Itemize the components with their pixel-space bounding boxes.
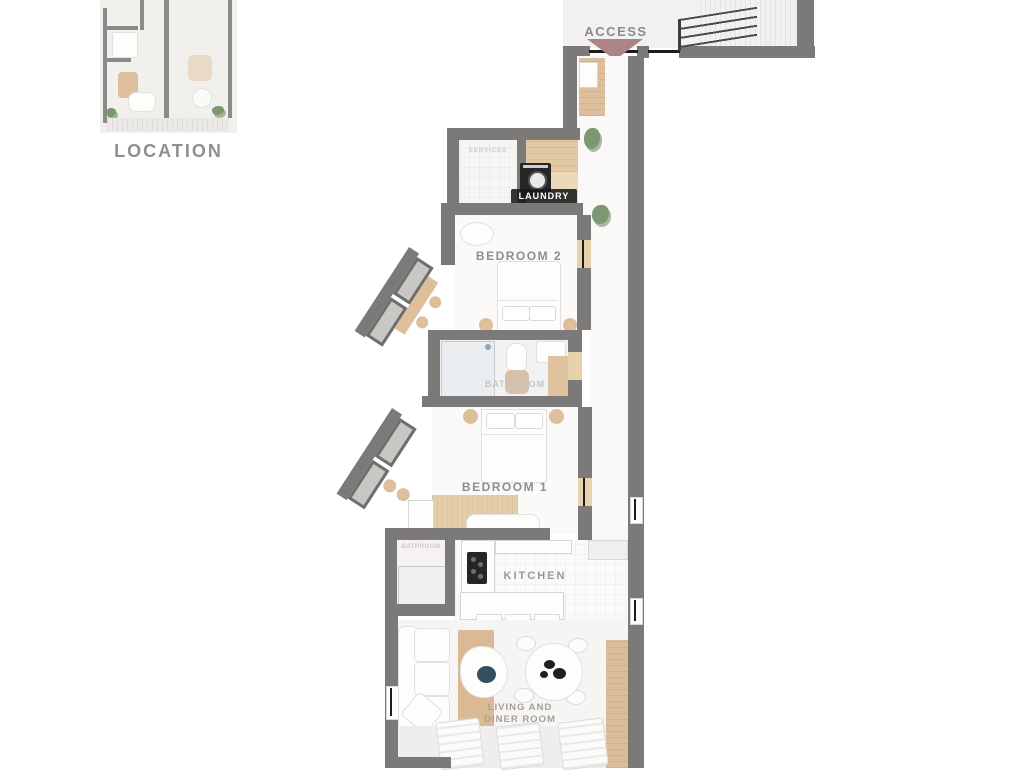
bathroom-door-threshold [568,352,582,380]
stair-opening-line [648,50,680,53]
small-shower [398,566,446,607]
bedroom1-right-wall [578,407,592,534]
bedroom1-door-threshold [578,478,592,506]
kitchen-label: KITCHEN [480,570,590,582]
small-bathroom-right-wall [445,540,455,612]
entry-cabinet [579,62,598,88]
bedroom2-bed [497,261,561,333]
right-wall-door-line [634,499,636,520]
access-label: ACCESS [578,24,654,39]
bedroom2-left-wall [441,203,455,265]
nightstand [549,409,564,424]
nightstand [463,409,478,424]
services-label: SERVICES [461,148,515,154]
bedroom1-door-line [583,478,585,506]
services-top-wall [447,128,580,140]
bedroom2-rug [460,222,494,246]
deck-wood [606,640,628,768]
living-window-line [390,688,392,716]
toilet [506,343,527,373]
bathroom-left-wall [428,330,440,400]
living-label-line1: LIVING AND [460,702,580,713]
bathroom-top-wall [428,330,578,340]
bedroom1-label: BEDROOM 1 [440,480,570,494]
bedroom2-right-wall [577,215,591,330]
sun-lounger [557,717,609,770]
bedroom1-bed [481,409,547,483]
small-bathroom-label: BATHROOM [397,544,445,550]
sofa [398,626,460,734]
bathroom-label: BATHROOM [470,379,560,389]
laundry-banner: LAUNDRY [511,189,577,204]
floor-plan: ACCESS SERVICES LAUNDRY BEDROOM [0,0,1024,768]
right-wall-door-line [634,600,636,621]
laundry-label: LAUNDRY [511,189,577,204]
lower-top-wall [385,528,550,540]
lower-top-wall [578,528,592,540]
right-wall-door-frame [630,598,643,625]
kitchen-upper-counter [495,540,572,554]
terrace-bottom-wall [385,757,451,768]
bedroom2-top-wall [443,203,583,215]
right-wall-door-frame [630,497,643,524]
right-outer-wall [628,56,644,768]
bathroom-cabinet [548,356,568,396]
dining-table [525,643,583,701]
sun-lounger [495,721,544,770]
fridge [588,540,628,560]
coffee-table [460,646,508,698]
dining-chair [516,636,536,651]
shower-head-icon [485,344,491,350]
small-bathroom-left-wall [385,528,397,612]
bathroom-bottom-wall [422,396,582,407]
